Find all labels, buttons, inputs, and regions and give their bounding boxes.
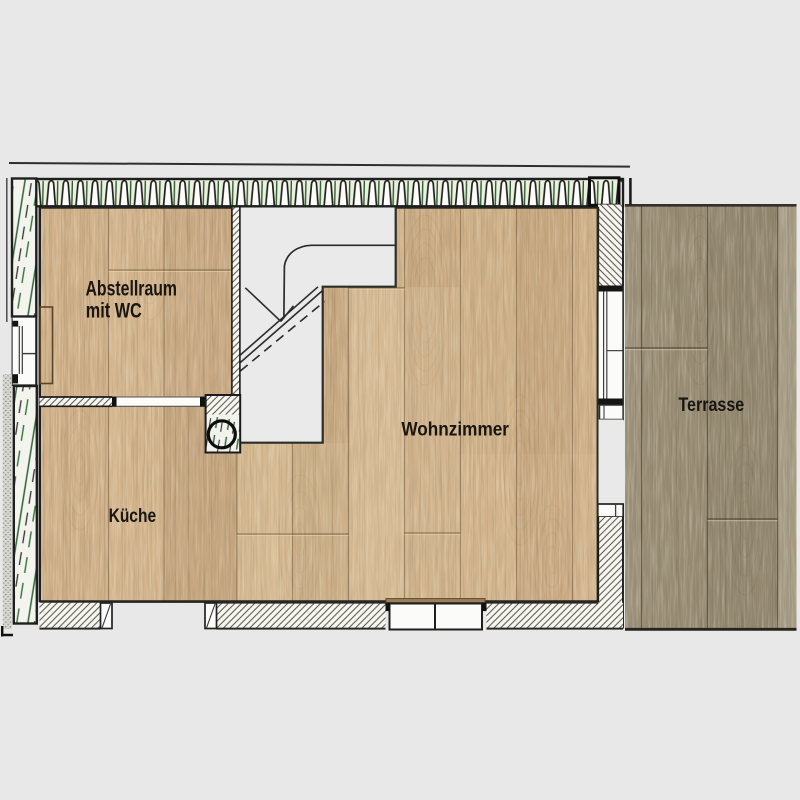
svg-text:Wohnzimmer: Wohnzimmer bbox=[401, 419, 509, 440]
svg-text:Terrasse: Terrasse bbox=[678, 395, 744, 416]
svg-text:mit WC: mit WC bbox=[86, 300, 142, 323]
svg-text:Abstellraum: Abstellraum bbox=[86, 278, 178, 301]
svg-text:Küche: Küche bbox=[109, 506, 157, 527]
